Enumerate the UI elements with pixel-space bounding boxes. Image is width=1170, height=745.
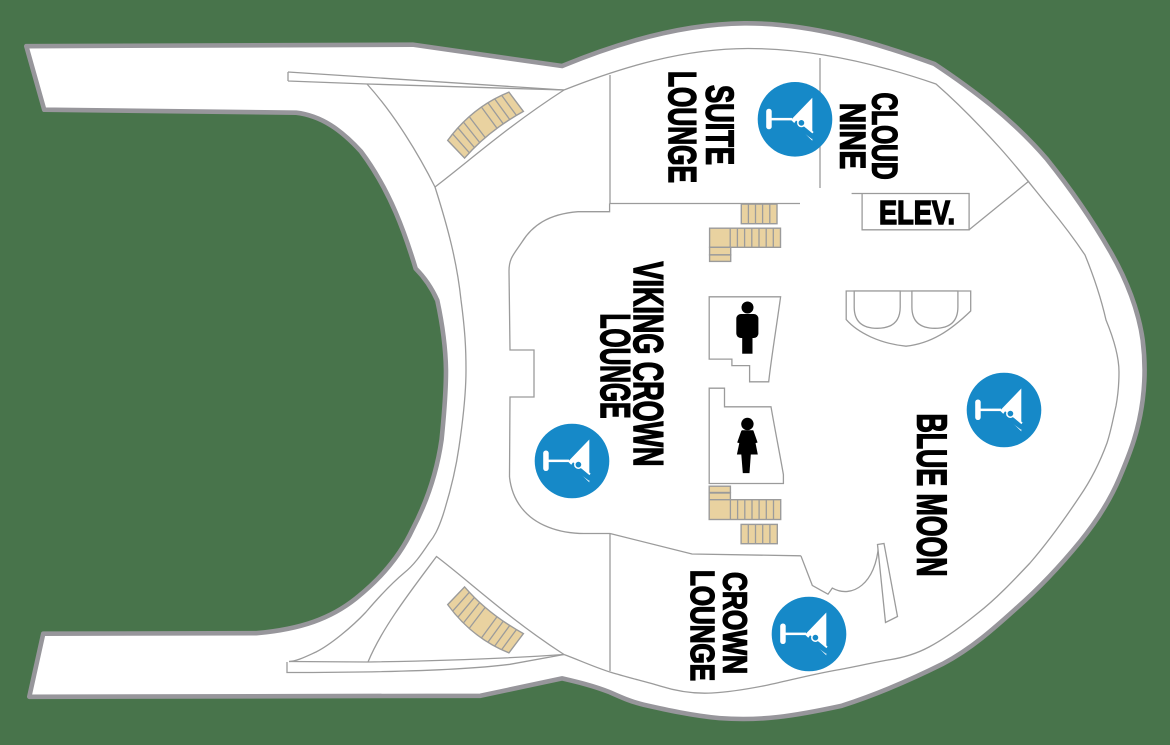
svg-text:LOUNGE: LOUNGE [660, 71, 703, 183]
svg-text:LOUNGE: LOUNGE [592, 314, 639, 419]
svg-text:ELEV.: ELEV. [879, 194, 955, 231]
svg-text:NINE: NINE [832, 103, 871, 169]
svg-text:BLUE MOON: BLUE MOON [908, 414, 955, 577]
svg-text:LOUNGE: LOUNGE [684, 570, 721, 681]
